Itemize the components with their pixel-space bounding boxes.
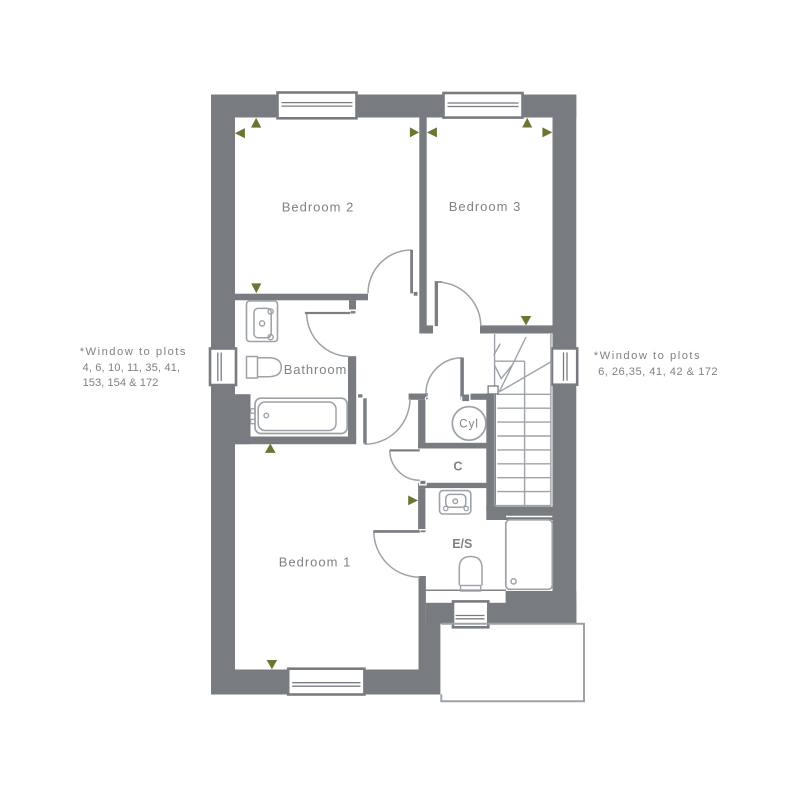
svg-text:*Window to plots: *Window to plots bbox=[594, 350, 701, 362]
svg-text:Bedroom 1: Bedroom 1 bbox=[279, 554, 352, 569]
svg-text:6, 26,35, 41, 42 & 172: 6, 26,35, 41, 42 & 172 bbox=[598, 366, 718, 378]
svg-text:4, 6, 10, 11, 35, 41,: 4, 6, 10, 11, 35, 41, bbox=[83, 362, 181, 374]
svg-text:Cyl: Cyl bbox=[459, 418, 479, 430]
svg-text:153, 154 & 172: 153, 154 & 172 bbox=[83, 377, 159, 389]
svg-text:*Window to plots: *Window to plots bbox=[80, 346, 187, 358]
svg-text:Bedroom 3: Bedroom 3 bbox=[449, 199, 522, 214]
svg-text:C: C bbox=[453, 459, 462, 473]
svg-text:Bedroom 2: Bedroom 2 bbox=[282, 200, 355, 215]
svg-text:Bathroom: Bathroom bbox=[284, 362, 348, 377]
svg-text:E/S: E/S bbox=[452, 537, 472, 551]
